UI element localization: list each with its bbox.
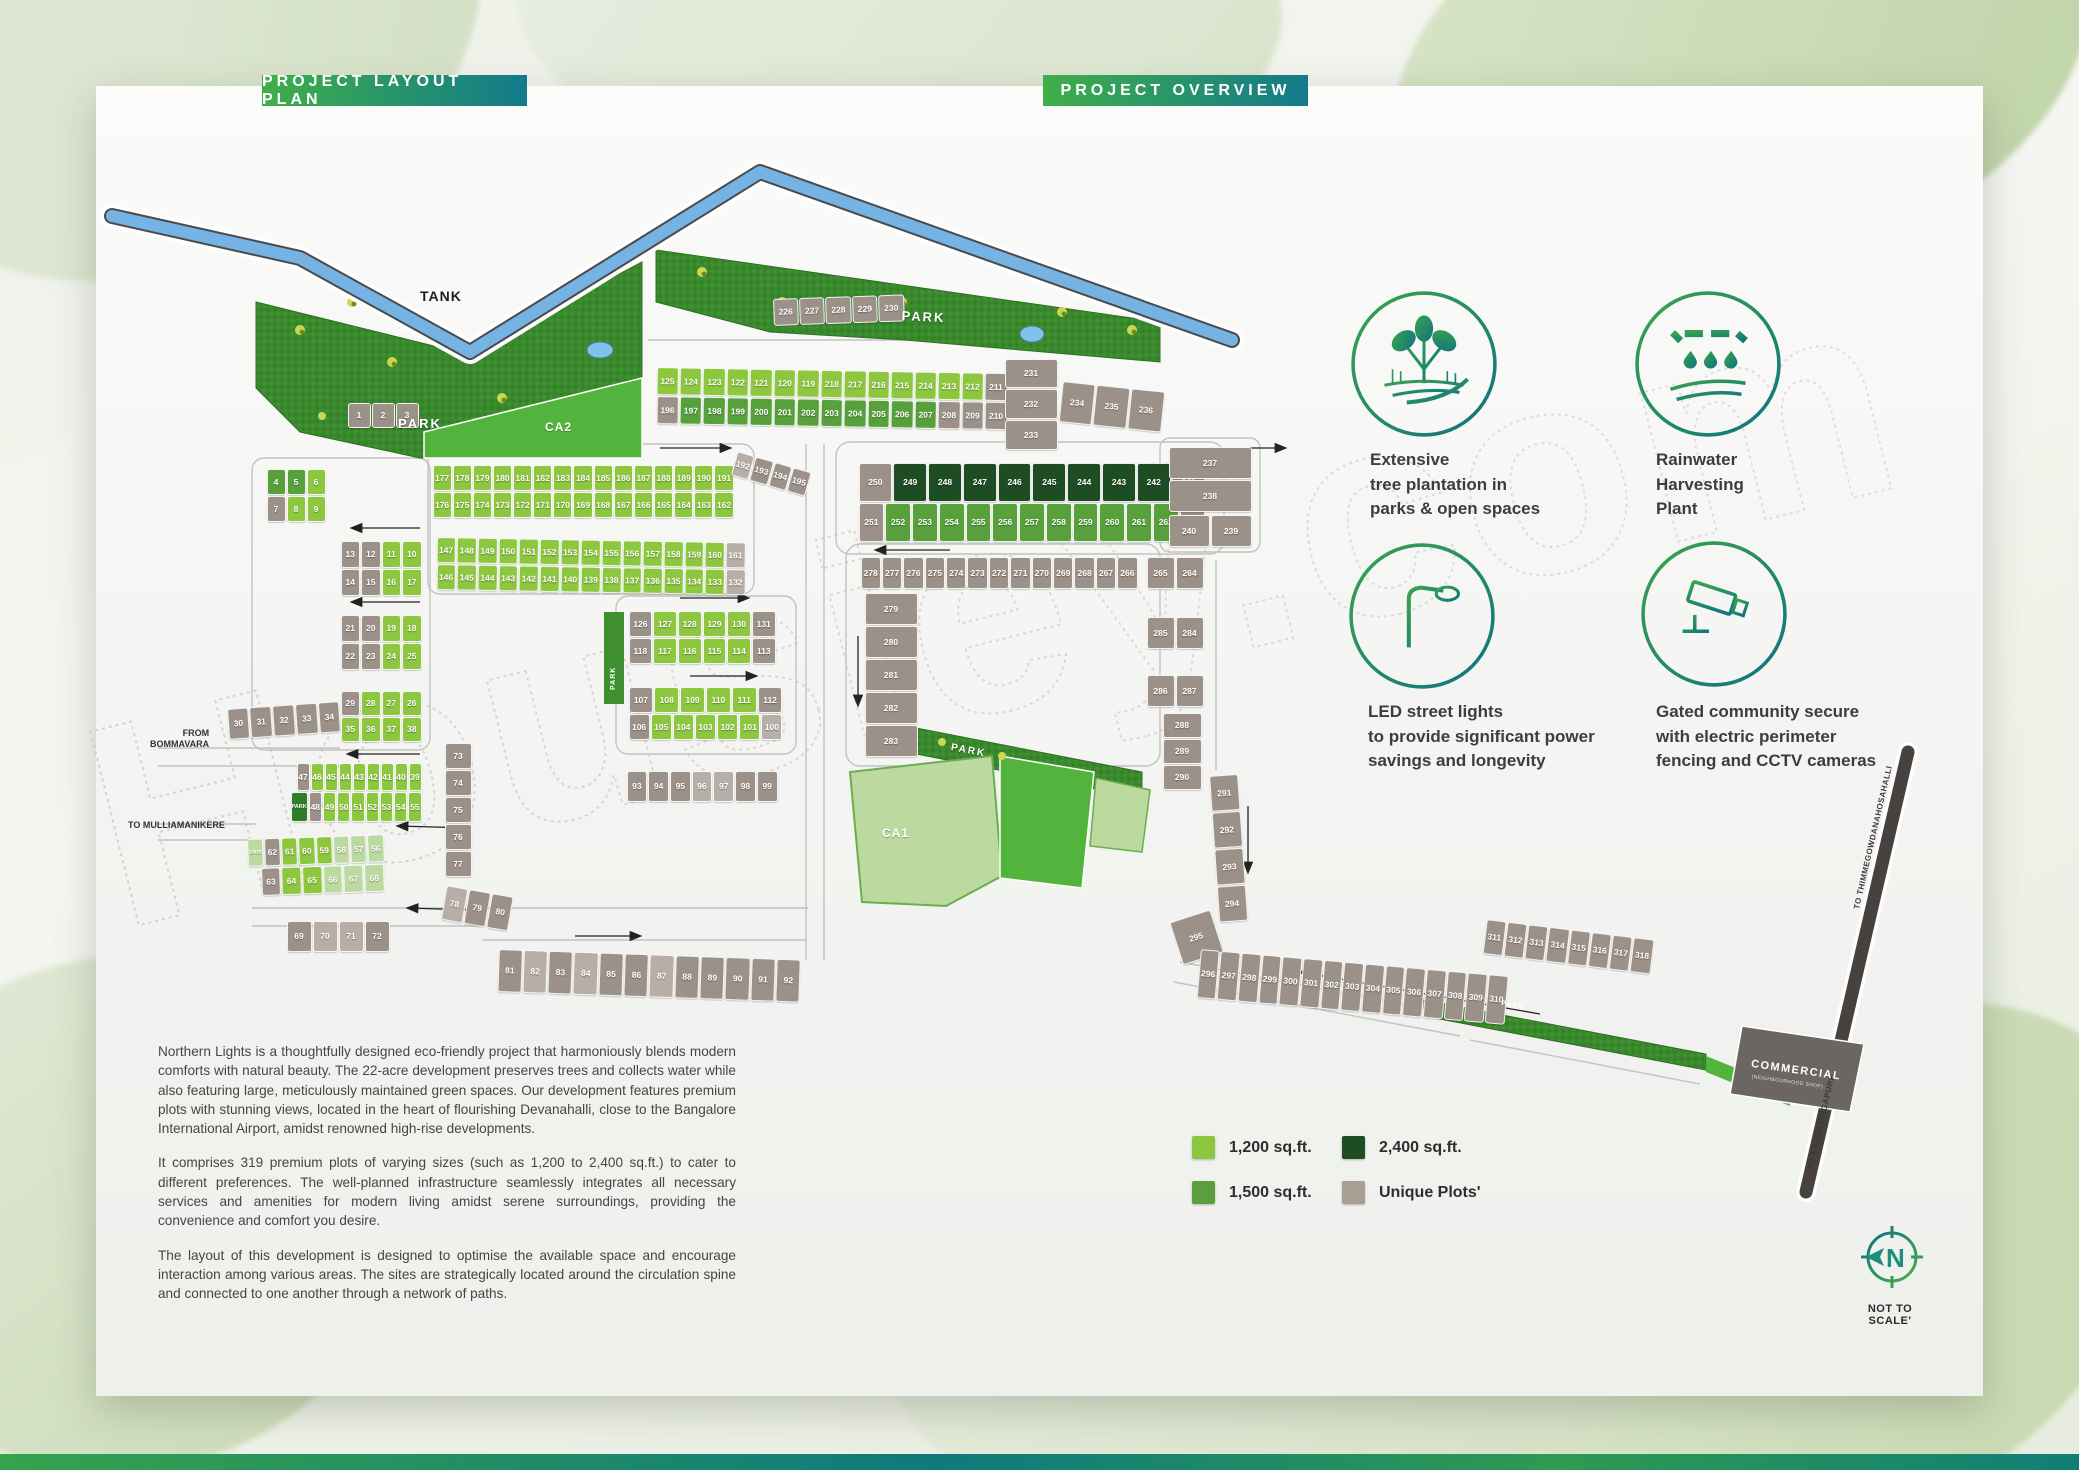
plot-256: 256 bbox=[992, 503, 1018, 542]
plot-97: 97 bbox=[713, 771, 734, 802]
plot-283: 283 bbox=[865, 725, 918, 757]
not-to-scale-note: NOT TO SCALE' bbox=[1848, 1303, 1932, 1327]
plot-248: 248 bbox=[928, 463, 962, 502]
plot-279: 279 bbox=[865, 593, 918, 625]
plot-207: 207 bbox=[914, 400, 937, 428]
legend-item: Unique Plots' bbox=[1342, 1181, 1512, 1204]
plot-142: 142 bbox=[519, 565, 539, 591]
plot-172: 172 bbox=[513, 492, 532, 518]
plot-block: 93949596979899 bbox=[626, 770, 778, 802]
plot-block: 2928272635363738 bbox=[340, 690, 422, 742]
plot-249: 249 bbox=[893, 463, 927, 502]
plot-62: 62 bbox=[264, 837, 281, 866]
plot-252: 252 bbox=[885, 503, 911, 542]
plot-141: 141 bbox=[539, 565, 559, 591]
plot-166: 166 bbox=[634, 492, 653, 518]
plot-6: 6 bbox=[307, 469, 326, 495]
plot-55: 55 bbox=[408, 792, 421, 822]
plot-272: 272 bbox=[989, 557, 1009, 589]
plot-251: 251 bbox=[859, 503, 885, 542]
plot-275: 275 bbox=[925, 557, 945, 589]
plot-81: 81 bbox=[497, 949, 523, 993]
plot-size-legend: 1,200 sq.ft.2,400 sq.ft.1,500 sq.ft.Uniq… bbox=[1192, 1136, 1512, 1204]
tree-plantation-icon bbox=[1348, 288, 1500, 440]
plot-315: 315 bbox=[1567, 929, 1591, 966]
plot-261: 261 bbox=[1126, 503, 1152, 542]
legend-swatch bbox=[1342, 1136, 1365, 1159]
plot-120: 120 bbox=[773, 369, 796, 397]
plot-77: 77 bbox=[445, 851, 472, 877]
plot-240: 240 bbox=[1169, 515, 1210, 547]
plot-67: 67 bbox=[343, 864, 364, 893]
plot-136: 136 bbox=[643, 567, 663, 593]
plot-161: 161 bbox=[725, 542, 745, 568]
plot-269: 269 bbox=[1053, 557, 1073, 589]
plot-250: 250 bbox=[859, 463, 893, 502]
plot-266: 266 bbox=[1117, 557, 1137, 589]
plot-block: 7374757677 bbox=[444, 742, 472, 877]
plot-53: 53 bbox=[380, 792, 393, 822]
plot-286: 286 bbox=[1147, 675, 1175, 707]
plot-43: 43 bbox=[353, 763, 366, 791]
plot-197: 197 bbox=[679, 396, 702, 424]
plot-85: 85 bbox=[598, 952, 624, 996]
plot-288: 288 bbox=[1163, 713, 1202, 738]
plot-83: 83 bbox=[548, 950, 574, 994]
plot-23: 23 bbox=[361, 643, 381, 670]
plot-block: 1761751741731721711701691681671661651641… bbox=[432, 491, 734, 518]
description-paragraph-1: Northern Lights is a thoughtfully design… bbox=[158, 1042, 736, 1138]
plot-61: 61 bbox=[281, 837, 298, 866]
plot-133: 133 bbox=[705, 568, 725, 594]
overview-item-gated-security bbox=[1638, 538, 1790, 695]
plot-213: 213 bbox=[938, 371, 961, 399]
plot-48: 48 bbox=[309, 792, 322, 822]
plot-block: 3031323334 bbox=[226, 700, 342, 740]
legend-swatch bbox=[1192, 1181, 1215, 1204]
plot-300: 300 bbox=[1279, 956, 1303, 1007]
plot-110: 110 bbox=[706, 687, 731, 713]
map-label: PARK bbox=[901, 308, 946, 325]
plot-14: 14 bbox=[341, 569, 361, 596]
plot-1: 1 bbox=[348, 403, 371, 428]
plot-156: 156 bbox=[622, 540, 642, 566]
plot-181: 181 bbox=[513, 465, 532, 491]
plot-44: 44 bbox=[339, 763, 352, 791]
plot-298: 298 bbox=[1237, 952, 1261, 1003]
plot-176: 176 bbox=[433, 492, 452, 518]
legend-item: 2,400 sq.ft. bbox=[1342, 1136, 1512, 1159]
plot-103: 103 bbox=[695, 714, 716, 740]
plot-32: 32 bbox=[272, 704, 296, 736]
plot-block: 226227228229230 bbox=[772, 293, 905, 326]
plot-257: 257 bbox=[1019, 503, 1045, 542]
plot-159: 159 bbox=[684, 541, 704, 567]
plot-101: 101 bbox=[739, 714, 760, 740]
plot-2: 2 bbox=[372, 403, 395, 428]
plot-40: 40 bbox=[395, 763, 408, 791]
description-paragraph-2: It comprises 319 premium plots of varyin… bbox=[158, 1153, 736, 1230]
map-label: PARK bbox=[398, 416, 442, 431]
plot-290: 290 bbox=[1163, 765, 1202, 790]
plot-block: 250249248247246245244243242241 bbox=[858, 462, 1206, 502]
map-label: TO MULLIAMANIKERE bbox=[128, 820, 225, 831]
plot-18: 18 bbox=[402, 615, 422, 642]
plot-196: 196 bbox=[656, 396, 679, 424]
plot-block: 69707172 bbox=[286, 920, 390, 952]
plot-310: 310 bbox=[1484, 974, 1508, 1025]
north-compass-icon: N bbox=[1848, 1222, 1932, 1292]
plot-80: 80 bbox=[486, 893, 514, 931]
compass-n-letter: N bbox=[1886, 1243, 1905, 1273]
plot-PARK: PARK bbox=[291, 792, 308, 822]
rainwater-harvesting-icon bbox=[1632, 288, 1784, 440]
plot-187: 187 bbox=[634, 465, 653, 491]
plot-102: 102 bbox=[717, 714, 738, 740]
plot-54: 54 bbox=[394, 792, 407, 822]
plot-243: 243 bbox=[1102, 463, 1136, 502]
plot-block: 1961971981992002012022032042052062072082… bbox=[655, 395, 1007, 430]
plot-314: 314 bbox=[1545, 926, 1569, 963]
plot-12: 12 bbox=[361, 541, 381, 568]
plot-7: 7 bbox=[267, 496, 286, 522]
legend-item: 1,200 sq.ft. bbox=[1192, 1136, 1342, 1159]
plot-52: 52 bbox=[366, 792, 379, 822]
plot-245: 245 bbox=[1032, 463, 1066, 502]
plot-144: 144 bbox=[477, 564, 497, 590]
plot-185: 185 bbox=[594, 465, 613, 491]
map-label: TANK bbox=[420, 288, 462, 304]
project-description: Northern Lights is a thoughtfully design… bbox=[158, 1042, 736, 1319]
plot-146: 146 bbox=[436, 564, 456, 590]
plot-31: 31 bbox=[249, 705, 273, 737]
plot-block: 2120191822232425 bbox=[340, 614, 422, 670]
plot-91: 91 bbox=[750, 957, 776, 1001]
plot-25: 25 bbox=[402, 643, 422, 670]
plot-block: 286287 bbox=[1146, 674, 1204, 707]
plot-38: 38 bbox=[402, 717, 422, 742]
plot-175: 175 bbox=[453, 492, 472, 518]
plot-151: 151 bbox=[519, 538, 539, 564]
plot-268: 268 bbox=[1074, 557, 1094, 589]
plot-282: 282 bbox=[865, 692, 918, 724]
plot-block: 285284 bbox=[1146, 616, 1204, 649]
plot-231: 231 bbox=[1005, 359, 1058, 389]
plot-block: 636465666768 bbox=[260, 863, 385, 896]
plot-247: 247 bbox=[963, 463, 997, 502]
plot-278: 278 bbox=[861, 557, 881, 589]
plot-164: 164 bbox=[674, 492, 693, 518]
map-label: TO THIMMEGOWDANAHOSAHALLI bbox=[1852, 765, 1894, 910]
plot-163: 163 bbox=[694, 492, 713, 518]
plot-154: 154 bbox=[581, 539, 601, 565]
plot-11: 11 bbox=[382, 541, 402, 568]
plot-152: 152 bbox=[539, 538, 559, 564]
plot-123: 123 bbox=[703, 367, 726, 395]
plot-125: 125 bbox=[656, 367, 679, 395]
plot-244: 244 bbox=[1067, 463, 1101, 502]
plot-27: 27 bbox=[382, 691, 402, 716]
plot-204: 204 bbox=[844, 399, 867, 427]
plot-block: 2962972982993003013023033043053063073083… bbox=[1196, 948, 1509, 1025]
plot-64: 64 bbox=[281, 866, 302, 895]
plot-65: 65 bbox=[302, 865, 323, 894]
plot-301: 301 bbox=[1299, 958, 1323, 1009]
plot-202: 202 bbox=[797, 398, 820, 426]
plot-66: 66 bbox=[322, 865, 343, 894]
plot-277: 277 bbox=[882, 557, 902, 589]
plot-29: 29 bbox=[341, 691, 361, 716]
plot-188: 188 bbox=[654, 465, 673, 491]
overview-item-tree-plantation bbox=[1348, 288, 1500, 445]
plot-292: 292 bbox=[1211, 810, 1242, 848]
plot-291: 291 bbox=[1209, 773, 1240, 811]
plot-71: 71 bbox=[339, 921, 364, 952]
plot-59: 59 bbox=[315, 836, 332, 865]
plot-block: 787980 bbox=[440, 884, 515, 932]
plot-118: 118 bbox=[629, 638, 653, 664]
plot-114: 114 bbox=[727, 638, 751, 664]
plot-8: 8 bbox=[287, 496, 306, 522]
plot-112: 112 bbox=[758, 687, 783, 713]
plot-block: 1461451441431421411401391381371361351341… bbox=[436, 563, 746, 595]
plot-265: 265 bbox=[1147, 557, 1175, 589]
plot-307: 307 bbox=[1423, 968, 1447, 1019]
plot-block: 474645444342414039 bbox=[296, 762, 422, 791]
plot-149: 149 bbox=[477, 537, 497, 563]
plot-160: 160 bbox=[705, 541, 725, 567]
plot-147: 147 bbox=[436, 537, 456, 563]
plot-block: 240239 bbox=[1168, 514, 1252, 547]
plot-74: 74 bbox=[445, 770, 472, 796]
plot-105: 105 bbox=[651, 714, 672, 740]
plot-30: 30 bbox=[227, 707, 251, 739]
plot-165: 165 bbox=[654, 492, 673, 518]
plot-293: 293 bbox=[1214, 847, 1245, 885]
map-label: PARK bbox=[610, 667, 617, 690]
plot-140: 140 bbox=[560, 566, 580, 592]
plot-87: 87 bbox=[649, 954, 675, 998]
plot-206: 206 bbox=[891, 400, 914, 428]
plot-153: 153 bbox=[560, 539, 580, 565]
plot-58: 58 bbox=[333, 835, 350, 864]
legend-swatch bbox=[1192, 1136, 1215, 1159]
plot-90: 90 bbox=[725, 956, 751, 1000]
plot-242: 242 bbox=[1137, 463, 1171, 502]
plot-88: 88 bbox=[674, 955, 700, 999]
plot-199: 199 bbox=[726, 397, 749, 425]
plot-145: 145 bbox=[457, 564, 477, 590]
plot-148: 148 bbox=[457, 537, 477, 563]
plot-233: 233 bbox=[1005, 420, 1058, 450]
plot-47: 47 bbox=[297, 763, 310, 791]
plot-block: 231232233 bbox=[1004, 358, 1058, 450]
plot-block: 818283848586878889909192 bbox=[496, 948, 801, 1003]
plot-82: 82 bbox=[522, 949, 548, 993]
plot-104: 104 bbox=[673, 714, 694, 740]
plot-35: 35 bbox=[341, 717, 361, 742]
plot-127: 127 bbox=[653, 611, 677, 637]
plot-254: 254 bbox=[939, 503, 965, 542]
plot-294: 294 bbox=[1216, 884, 1247, 922]
plot-33: 33 bbox=[295, 702, 319, 734]
legend-label: 2,400 sq.ft. bbox=[1379, 1139, 1462, 1157]
plot-173: 173 bbox=[493, 492, 512, 518]
led-street-light-icon bbox=[1346, 540, 1498, 692]
poster-canvas: PROJECT LAYOUT PLAN PROJECT OVERVIEW Hou… bbox=[0, 0, 2079, 1470]
plot-72: 72 bbox=[365, 921, 390, 952]
plot-174: 174 bbox=[473, 492, 492, 518]
plot-311: 311 bbox=[1482, 919, 1506, 956]
plot-198: 198 bbox=[703, 396, 726, 424]
plot-170: 170 bbox=[553, 492, 572, 518]
plot-235: 235 bbox=[1093, 384, 1131, 428]
plot-162: 162 bbox=[714, 492, 733, 518]
plot-157: 157 bbox=[643, 540, 663, 566]
plot-143: 143 bbox=[498, 565, 518, 591]
plot-180: 180 bbox=[493, 465, 512, 491]
plot-block: 311312313314315316317318 bbox=[1482, 918, 1655, 974]
plot-289: 289 bbox=[1163, 739, 1202, 764]
plot-37: 37 bbox=[382, 717, 402, 742]
plot-134: 134 bbox=[684, 568, 704, 594]
plot-297: 297 bbox=[1217, 950, 1241, 1001]
plot-209: 209 bbox=[961, 401, 984, 429]
plot-39: 39 bbox=[409, 763, 422, 791]
plot-158: 158 bbox=[663, 540, 683, 566]
plot-280: 280 bbox=[865, 626, 918, 658]
plot-264: 264 bbox=[1176, 557, 1204, 589]
plot-22: 22 bbox=[341, 643, 361, 670]
plot-86: 86 bbox=[624, 953, 650, 997]
plot-block: 234235236 bbox=[1058, 380, 1166, 433]
plot-208: 208 bbox=[938, 400, 961, 428]
plot-205: 205 bbox=[867, 399, 890, 427]
plot-block: 278277276275274273272271270269268267266 bbox=[860, 556, 1138, 589]
plot-287: 287 bbox=[1176, 675, 1204, 707]
bottom-gradient-bar bbox=[0, 1454, 2079, 1470]
plot-177: 177 bbox=[433, 465, 452, 491]
plot-259: 259 bbox=[1073, 503, 1099, 542]
plot-212: 212 bbox=[961, 372, 984, 400]
plot-block: 251252253254255256257258259260261262263 bbox=[858, 502, 1206, 542]
plot-273: 273 bbox=[967, 557, 987, 589]
plot-63: 63 bbox=[261, 867, 282, 896]
plot-190: 190 bbox=[694, 465, 713, 491]
plot-117: 117 bbox=[653, 638, 677, 664]
plot-21: 21 bbox=[341, 615, 361, 642]
plot-115: 115 bbox=[703, 638, 727, 664]
plot-284: 284 bbox=[1176, 617, 1204, 649]
plot-111: 111 bbox=[732, 687, 757, 713]
plot-227: 227 bbox=[799, 297, 825, 325]
legend-item: 1,500 sq.ft. bbox=[1192, 1181, 1342, 1204]
plot-274: 274 bbox=[946, 557, 966, 589]
plot-block: 279280281282283 bbox=[864, 592, 918, 757]
plot-203: 203 bbox=[820, 398, 843, 426]
plot-232: 232 bbox=[1005, 389, 1058, 419]
plot-169: 169 bbox=[573, 492, 592, 518]
plot-13: 13 bbox=[341, 541, 361, 568]
plot-130: 130 bbox=[727, 611, 751, 637]
plot-281: 281 bbox=[865, 659, 918, 691]
plot-215: 215 bbox=[891, 371, 914, 399]
plot-block: 126127128129130131118117116115114113 bbox=[628, 610, 776, 664]
plot-116: 116 bbox=[678, 638, 702, 664]
legend-swatch bbox=[1342, 1181, 1365, 1204]
plot-94: 94 bbox=[648, 771, 669, 802]
plot-139: 139 bbox=[581, 566, 601, 592]
plot-28: 28 bbox=[361, 691, 381, 716]
plot-178: 178 bbox=[453, 465, 472, 491]
plot-122: 122 bbox=[726, 368, 749, 396]
plot-45: 45 bbox=[325, 763, 338, 791]
plot-block: 107108109110111112106105104103102101100 bbox=[628, 686, 783, 740]
overview-text-rainwater: Rainwater Harvesting Plant bbox=[1656, 448, 1876, 522]
plot-285: 285 bbox=[1147, 617, 1175, 649]
legend-label: 1,500 sq.ft. bbox=[1229, 1184, 1312, 1202]
plot-42: 42 bbox=[367, 763, 380, 791]
plot-36: 36 bbox=[361, 717, 381, 742]
plot-253: 253 bbox=[912, 503, 938, 542]
overview-text-street-lights: LED street lights to provide significant… bbox=[1368, 700, 1628, 774]
plot-126: 126 bbox=[629, 611, 653, 637]
plot-89: 89 bbox=[699, 956, 725, 1000]
plot-20: 20 bbox=[361, 615, 381, 642]
plot-46: 46 bbox=[311, 763, 324, 791]
plot-98: 98 bbox=[735, 771, 756, 802]
plot-216: 216 bbox=[867, 370, 890, 398]
overview-item-rainwater bbox=[1632, 288, 1784, 445]
plot-5: 5 bbox=[287, 469, 306, 495]
plot-108: 108 bbox=[654, 687, 679, 713]
plot-201: 201 bbox=[773, 398, 796, 426]
plot-124: 124 bbox=[679, 367, 702, 395]
plot-255: 255 bbox=[966, 503, 992, 542]
plot-17: 17 bbox=[402, 569, 422, 596]
plot-9: 9 bbox=[307, 496, 326, 522]
plot-block: 456789 bbox=[266, 468, 326, 522]
overview-item-street-lights bbox=[1346, 540, 1498, 697]
plot-10: 10 bbox=[402, 541, 422, 568]
plot-99: 99 bbox=[757, 771, 778, 802]
plot-119: 119 bbox=[797, 369, 820, 397]
map-label: CA1 bbox=[882, 826, 909, 840]
plot-234: 234 bbox=[1058, 381, 1096, 425]
plot-block: 1771781791801811821831841851861871881891… bbox=[432, 464, 734, 491]
plot-68: 68 bbox=[364, 863, 385, 892]
plot-138: 138 bbox=[601, 566, 621, 592]
plot-129: 129 bbox=[703, 611, 727, 637]
plot-57: 57 bbox=[350, 834, 367, 863]
plot-132: 132 bbox=[725, 569, 745, 595]
plot-73: 73 bbox=[445, 743, 472, 769]
plot-100: 100 bbox=[761, 714, 782, 740]
plot-70: 70 bbox=[313, 921, 338, 952]
plot-155: 155 bbox=[601, 539, 621, 565]
overview-text-gated-security: Gated community secure with electric per… bbox=[1656, 700, 1906, 774]
overview-text-tree-plantation: Extensive tree plantation in parks & ope… bbox=[1370, 448, 1605, 522]
plot-318: 318 bbox=[1630, 937, 1654, 974]
plot-303: 303 bbox=[1340, 961, 1364, 1012]
plot-113: 113 bbox=[752, 638, 776, 664]
cctv-camera-icon bbox=[1638, 538, 1790, 690]
plot-15: 15 bbox=[361, 569, 381, 596]
plot-276: 276 bbox=[903, 557, 923, 589]
plot-214: 214 bbox=[914, 371, 937, 399]
plot-19: 19 bbox=[382, 615, 402, 642]
plot-137: 137 bbox=[622, 567, 642, 593]
